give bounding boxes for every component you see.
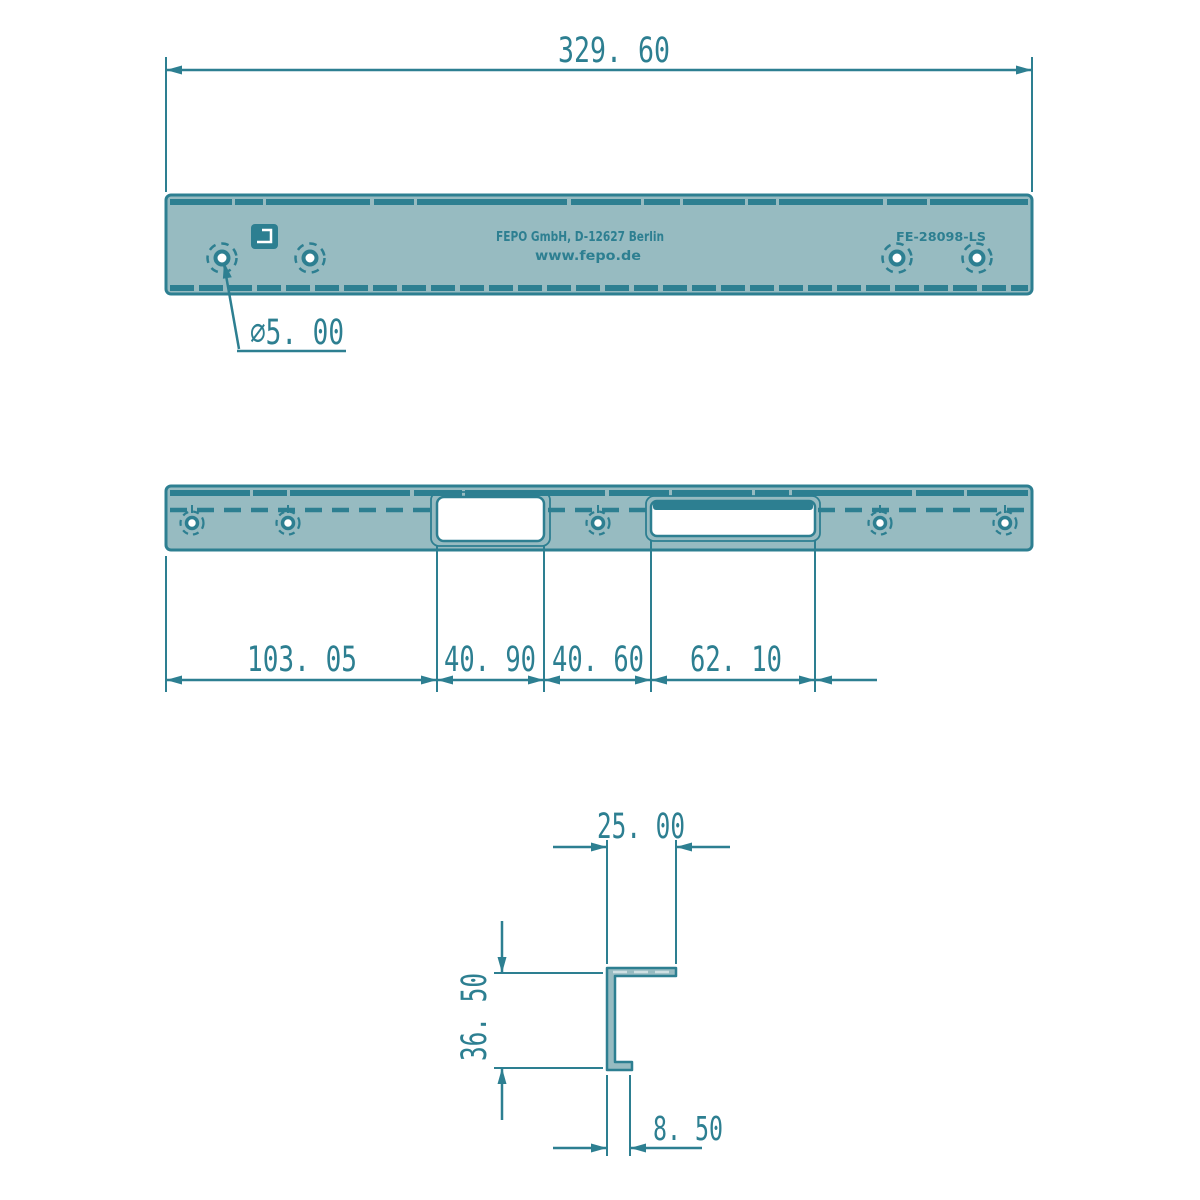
manufacturer-stamp-line1: FEPO GmbH, D-12627 Berlin [496,230,664,245]
cutout-opening [437,497,544,541]
left-offset-value: 103. 05 [247,640,357,680]
front-view [166,486,1032,550]
profile-top-width-value: 25. 00 [597,807,685,847]
overall-width-dimension: 329. 60 [166,31,1032,192]
gap-width-value: 40. 60 [552,640,644,680]
hole-bore [187,518,198,529]
cutout1-width-value: 40. 90 [444,640,536,680]
arrowhead [591,1144,607,1153]
arrowhead [166,676,182,685]
arrowhead [651,676,667,685]
arrowhead [166,66,182,75]
top-view: FEPO GmbH, D-12627 Berlin www.fepo.de FE… [166,195,1032,294]
hole-bore [283,518,294,529]
overall-width-value: 329. 60 [558,31,670,71]
hole-bore [304,252,317,265]
manufacturer-stamp-line2: www.fepo.de [535,249,641,264]
profile-flange-value: 8. 50 [653,1109,723,1148]
hole-bore [891,252,904,265]
arrowhead [799,676,815,685]
hole-bore [216,252,229,265]
hole-bore [971,252,984,265]
arrowhead [498,1068,507,1084]
profile-height-dimension: 36. 50 [455,921,603,1120]
latch-cutout-1 [431,492,550,546]
arrowhead [816,676,832,685]
front-view-dimensions: 103. 05 40. 90 40. 60 62. 10 [166,540,877,692]
cutout2-width-value: 62. 10 [690,640,782,680]
arrowhead [421,676,437,685]
arrowhead [498,957,507,973]
profile-flange-dimension: 8. 50 [553,1075,723,1156]
part-number-stamp: FE-28098-LS [896,229,986,244]
hole-diameter-value: ⌀5. 00 [250,313,344,353]
hole-bore [875,518,886,529]
profile-top-width-dimension: 25. 00 [553,807,730,964]
logo-background [251,224,278,249]
latch-cutout-2 [646,496,820,541]
hole-bore [593,518,604,529]
technical-drawing: 329. 60 FEPO GmbH, D-12627 Berlin [0,0,1200,1200]
manufacturer-logo-stamp [251,224,278,249]
profile-view [607,968,676,1070]
cutout-lip-edge [653,502,813,510]
hole-bore [1000,518,1011,529]
z-profile-section [607,968,676,1070]
arrowhead [1016,66,1032,75]
arrowhead [630,1144,646,1153]
profile-height-value: 36. 50 [455,973,495,1061]
